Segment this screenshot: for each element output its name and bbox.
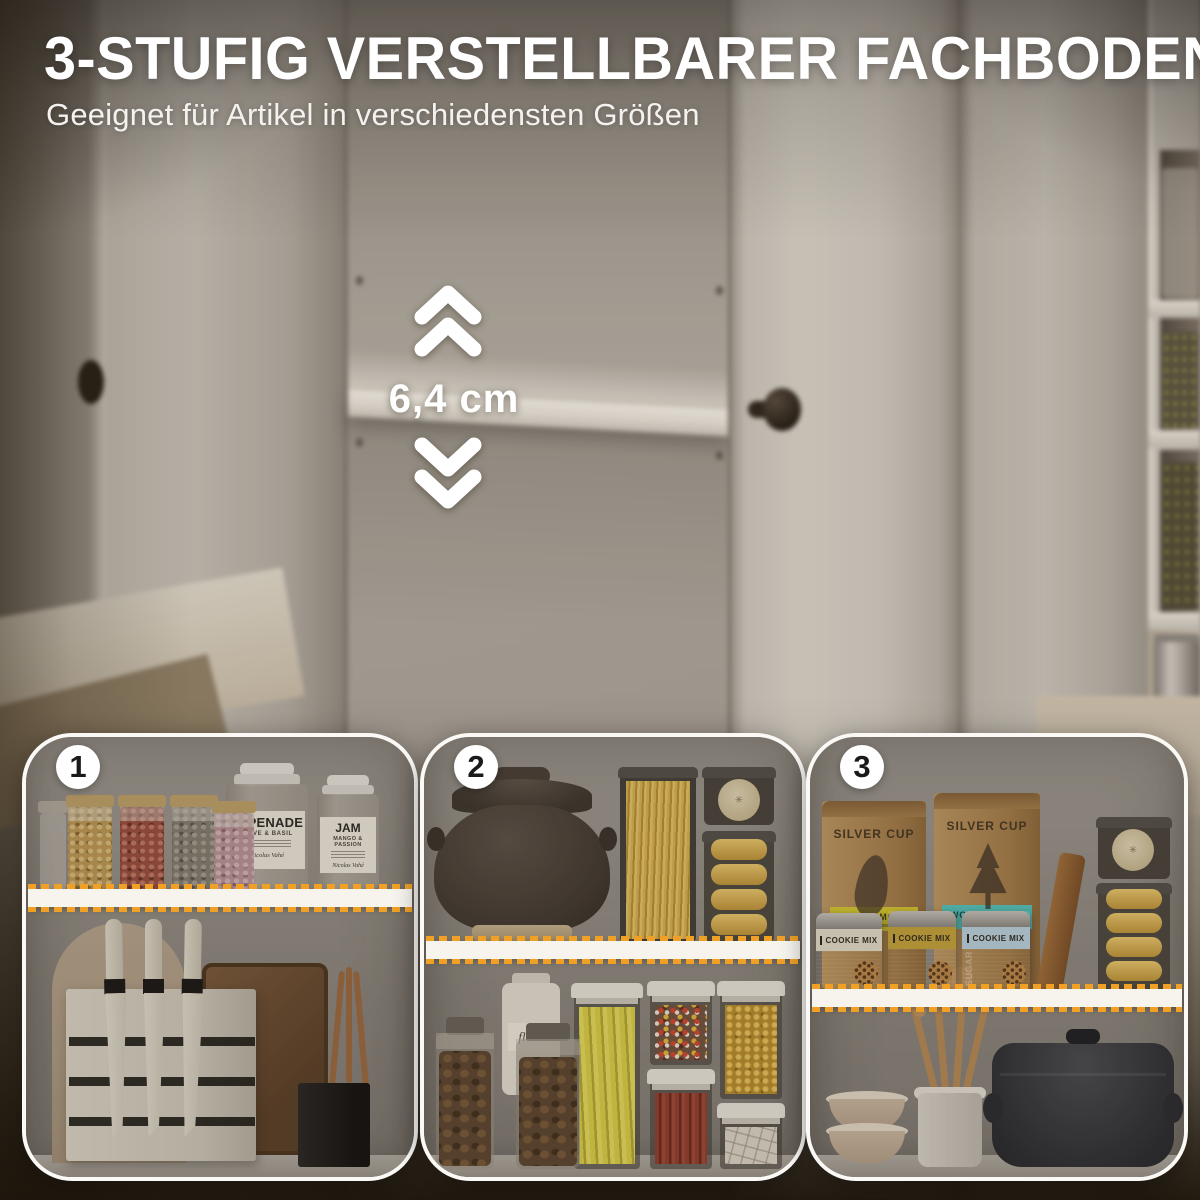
- tin-label: COOKIE MIX: [816, 929, 882, 951]
- highlighted-shelf-top-position: [28, 889, 412, 907]
- inset-1-badge: 1: [56, 745, 100, 789]
- product-marketing-image: 3-STUFIG VERSTELLBARER FACHBODEN Geeigne…: [0, 0, 1200, 1200]
- cookie-mix-tin-yellow: COOKIE MIX: [888, 911, 956, 989]
- inset-shelf-position-1: TAPENADE OLIVE & BASIL Nicolas Vahé JAM …: [22, 733, 418, 1181]
- inset-3-badge: 3: [840, 745, 884, 789]
- cookie-mix-tin-blue: COOKIE MIX SUGAR: [962, 911, 1030, 989]
- dutch-oven-lid-line: [1000, 1073, 1166, 1076]
- jam-label-title: JAM: [335, 821, 360, 835]
- kitchen-knife: [142, 919, 167, 1139]
- pink-bean-jar: [214, 813, 254, 891]
- tortilla-stack: ✳: [718, 779, 760, 821]
- red-bean-jar: [120, 807, 164, 891]
- bag-fold: [822, 801, 926, 817]
- dutch-oven: [992, 1043, 1174, 1167]
- cookie-mix-tin-cream: COOKIE MIX: [816, 913, 882, 989]
- tin-side-text: SUGAR: [964, 951, 974, 986]
- cannelloni-container: [1098, 883, 1170, 989]
- tin-label: COOKIE MIX: [888, 927, 956, 949]
- tin-lid: [888, 911, 956, 927]
- grey-bean-jar: [172, 807, 216, 891]
- inset-shelf-position-2: ✳ flour 2: [420, 733, 806, 1181]
- double-chevron-down-icon: [409, 436, 487, 514]
- inset-2-badge: 2: [454, 745, 498, 789]
- cookie-illustration: [1002, 961, 1026, 985]
- tin-lid: [962, 911, 1030, 927]
- kitchen-knife: [102, 919, 131, 1139]
- macaroni-container: [720, 981, 782, 1099]
- bag-brand: SILVER CUP: [822, 827, 926, 841]
- shelf-spacing-value: 6,4 cm: [364, 377, 544, 422]
- jam-label-sub: MANGO & PASSION: [320, 836, 376, 848]
- dutch-oven-knob: [1066, 1029, 1100, 1044]
- dutch-oven-handle: [983, 1093, 1003, 1123]
- preserve-jar-large: [516, 1039, 580, 1169]
- utensil-crock: [918, 1093, 982, 1167]
- red-stick-container: [650, 1069, 712, 1169]
- sugar-cube-container: [720, 1103, 782, 1169]
- jam-jar-label: JAM MANGO & PASSION Nicolas Vahé: [320, 817, 376, 873]
- black-utensil-holder: [298, 1083, 370, 1167]
- cookie-illustration: [928, 961, 952, 985]
- highlighted-shelf-middle-position: [426, 941, 800, 959]
- label-fine-print: [331, 851, 366, 860]
- spaghetti-container: [620, 767, 696, 943]
- wooden-chopstick: [346, 967, 352, 1083]
- tapenade-label-brand: Nicolas Vahé: [250, 852, 284, 859]
- tortilla-stack: ✳: [1112, 829, 1154, 871]
- clay-cooking-pot: [434, 767, 610, 943]
- pot-body: [434, 805, 610, 931]
- kitchen-knife: [178, 919, 207, 1139]
- dutch-oven-handle: [1163, 1093, 1183, 1123]
- jam-label-brand: Nicolas Vahé: [332, 863, 364, 869]
- tin-label: COOKIE MIX: [962, 927, 1030, 949]
- candy-container: [650, 981, 712, 1065]
- cookie-illustration: [854, 961, 878, 985]
- tortilla-container: ✳: [704, 767, 774, 825]
- preserve-jar-small: [436, 1033, 494, 1169]
- fettuccine-container: [574, 983, 640, 1169]
- inset-shelf-position-3: SILVER CUP SNOHO MOJO SILVER CUP WONDERL…: [806, 733, 1188, 1181]
- pot-handle: [599, 827, 617, 851]
- cannelloni-container: [704, 831, 774, 943]
- tortilla-container: ✳: [1098, 817, 1170, 879]
- stacked-bowls: [826, 1089, 908, 1167]
- bag-fold: [934, 793, 1040, 809]
- pot-handle: [427, 827, 445, 851]
- tin-lid: [816, 913, 882, 929]
- chickpea-jar: [68, 807, 112, 891]
- highlighted-shelf-bottom-position: [812, 989, 1182, 1007]
- empty-glass-jar: [40, 813, 66, 891]
- double-chevron-up-icon: [409, 280, 487, 358]
- bag-brand: SILVER CUP: [934, 819, 1040, 833]
